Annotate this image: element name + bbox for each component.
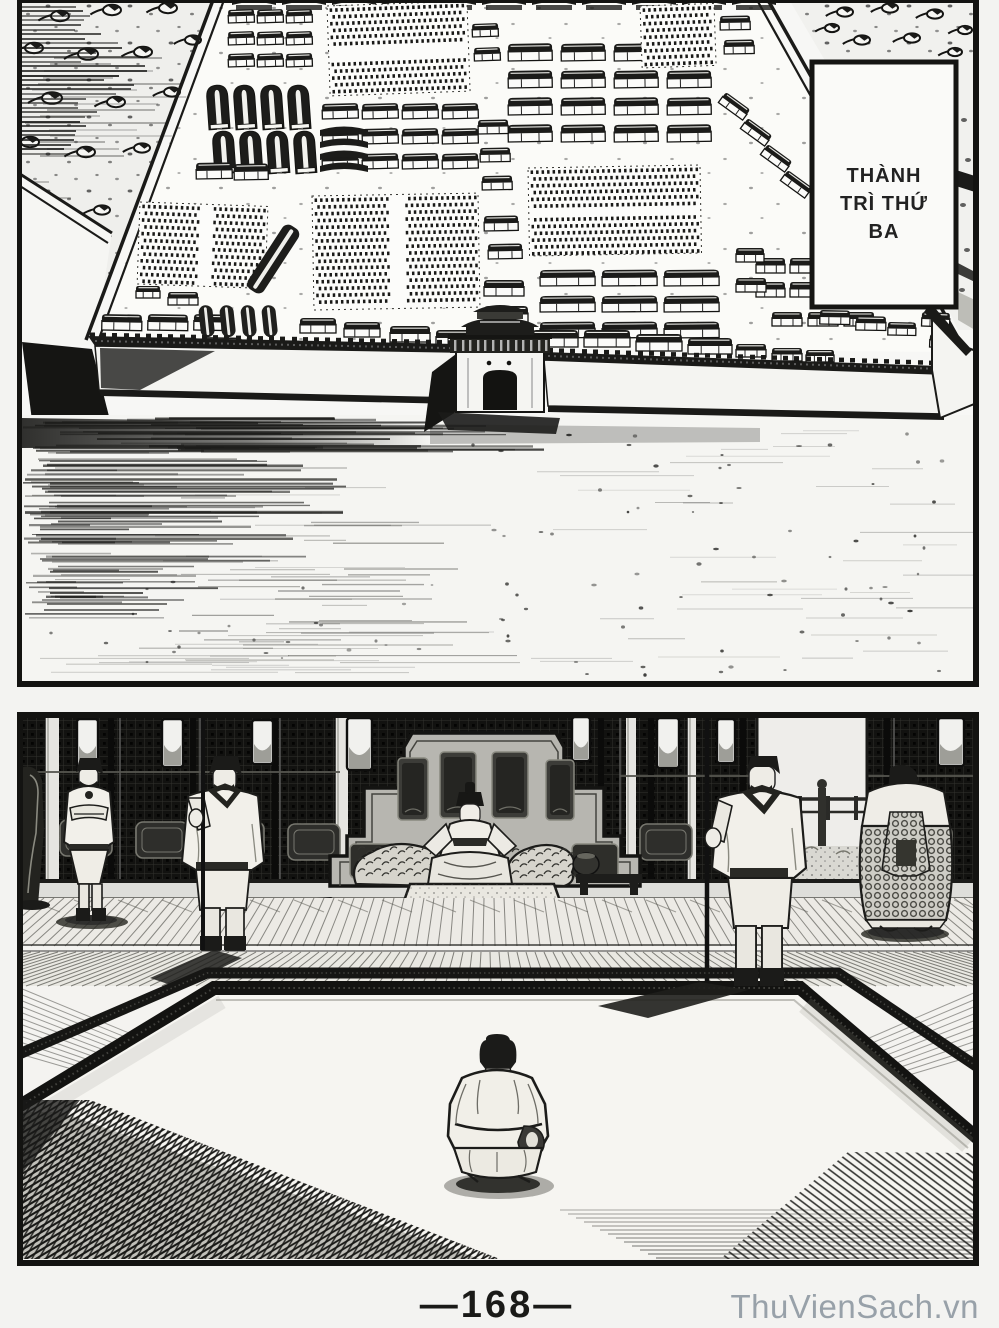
svg-text:TRÌ THỨ: TRÌ THỨ [840,191,928,215]
svg-text:THÀNH: THÀNH [847,164,922,187]
svg-text:BA: BA [869,221,900,243]
svg-text:—168—: —168— [420,1284,574,1326]
svg-text:ThuVienSach.vn: ThuVienSach.vn [730,1288,979,1325]
